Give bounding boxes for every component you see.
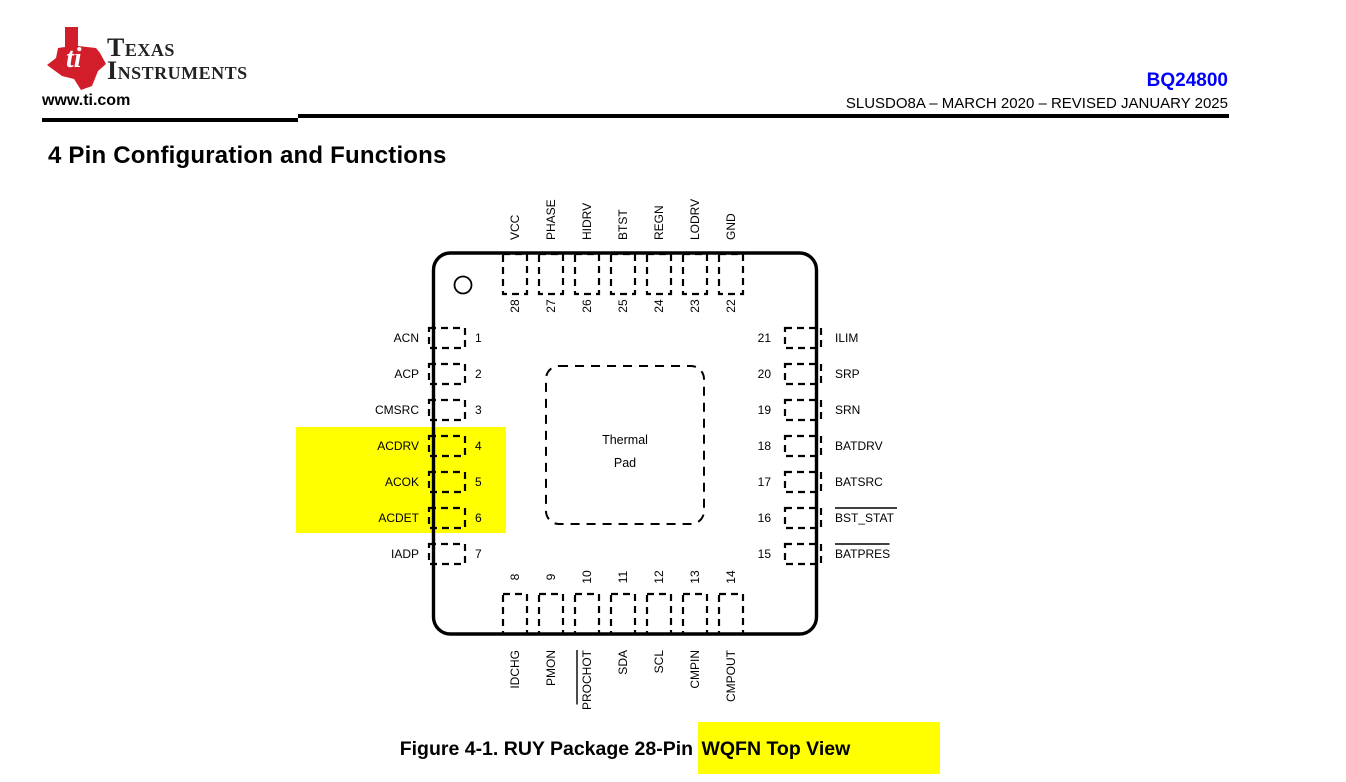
pin-pad-11	[611, 594, 635, 634]
pin-label-BATSRC: BATSRC	[835, 475, 883, 489]
pin-label-BTST: BTST	[616, 209, 630, 240]
pin-label-ACP: ACP	[394, 367, 419, 381]
thermal-pad-label-line2: Pad	[614, 456, 636, 470]
pin-label-ACN: ACN	[394, 331, 419, 345]
pin-number-24: 24	[652, 299, 666, 313]
pin-number-1: 1	[475, 331, 482, 345]
doc-revision-text: SLUSDO8A – MARCH 2020 – REVISED JANUARY …	[846, 95, 1228, 112]
pin-pad-26	[575, 254, 599, 294]
pin-pad-13	[683, 594, 707, 634]
pin-number-18: 18	[758, 439, 772, 453]
pin-number-9: 9	[544, 573, 558, 580]
ti-logo-icon: ti	[44, 26, 108, 92]
pin-label-BST_STAT: BST_STAT	[835, 511, 895, 525]
pin-number-23: 23	[688, 299, 702, 313]
pin-pad-10	[575, 594, 599, 634]
pin-number-13: 13	[688, 570, 702, 584]
pin-pad-24	[647, 254, 671, 294]
pin-label-LODRV: LODRV	[688, 199, 702, 240]
pin-number-4: 4	[475, 439, 482, 453]
pin-pad-23	[683, 254, 707, 294]
pin-label-ACDRV: ACDRV	[377, 439, 419, 453]
thermal-pad-label-line1: Thermal	[602, 433, 648, 447]
pin-label-CMPOUT: CMPOUT	[724, 649, 738, 702]
pin-label-SRN: SRN	[835, 403, 860, 417]
pin-label-IADP: IADP	[391, 547, 419, 561]
pin-pad-14	[719, 594, 743, 634]
pin-label-REGN: REGN	[652, 205, 666, 240]
pin-number-6: 6	[475, 511, 482, 525]
pin-pad-25	[611, 254, 635, 294]
pin-number-10: 10	[580, 570, 594, 584]
pin-label-PHASE: PHASE	[544, 199, 558, 240]
header-rule-right	[298, 114, 1229, 118]
pin-label-IDCHG: IDCHG	[508, 650, 522, 689]
pin-number-15: 15	[758, 547, 772, 561]
ti-monogram: ti	[66, 43, 82, 74]
pin-number-28: 28	[508, 299, 522, 313]
brand-line-instruments: Instruments	[107, 59, 248, 82]
pin-number-14: 14	[724, 570, 738, 584]
figure-caption-prefix: Figure 4-1. RUY Package 28-Pin	[400, 738, 699, 760]
brand-wordmark: Texas Instruments	[107, 36, 248, 82]
pin-pad-28	[503, 254, 527, 294]
pin-pad-12	[647, 594, 671, 634]
pin-label-SDA: SDA	[616, 650, 630, 675]
pin-number-8: 8	[508, 573, 522, 580]
pin-label-SRP: SRP	[835, 367, 860, 381]
part-number-link[interactable]: BQ24800	[1147, 70, 1228, 92]
pin-label-PROCHOT: PROCHOT	[580, 649, 594, 710]
pin-pad-8	[503, 594, 527, 634]
pin-number-3: 3	[475, 403, 482, 417]
pin-number-7: 7	[475, 547, 482, 561]
pin-label-VCC: VCC	[508, 214, 522, 240]
pin-number-26: 26	[580, 299, 594, 313]
header-rule-left	[42, 118, 298, 122]
pin-label-PMON: PMON	[544, 650, 558, 686]
pin-number-16: 16	[758, 511, 772, 525]
pin-number-5: 5	[475, 475, 482, 489]
pin-label-ACOK: ACOK	[385, 475, 419, 489]
website-link[interactable]: www.ti.com	[42, 92, 130, 110]
pin-number-19: 19	[758, 403, 772, 417]
pin-label-ILIM: ILIM	[835, 331, 858, 345]
pin1-indicator-icon	[455, 277, 472, 294]
pin-label-CMPIN: CMPIN	[688, 650, 702, 689]
figure-caption-highlight: WQFN Top View	[698, 722, 940, 774]
pin-label-CMSRC: CMSRC	[375, 403, 419, 417]
pin-number-20: 20	[758, 367, 772, 381]
figure-caption: Figure 4-1. RUY Package 28-Pin WQFN Top …	[300, 722, 1040, 774]
pin-pad-22	[719, 254, 743, 294]
section-title: 4 Pin Configuration and Functions	[48, 142, 447, 170]
pin-label-SCL: SCL	[652, 650, 666, 674]
pin-number-21: 21	[758, 331, 772, 345]
pin-number-27: 27	[544, 299, 558, 313]
pin-number-17: 17	[758, 475, 772, 489]
pin-configuration-diagram: ThermalPad28VCC27PHASE26HIDRV25BTST24REG…	[280, 180, 1020, 730]
pin-label-GND: GND	[724, 213, 738, 240]
pin-number-12: 12	[652, 570, 666, 584]
pin-pad-27	[539, 254, 563, 294]
pin-pad-9	[539, 594, 563, 634]
pin-number-22: 22	[724, 299, 738, 313]
pin-number-11: 11	[616, 570, 630, 583]
pin-number-2: 2	[475, 367, 482, 381]
pin-label-BATDRV: BATDRV	[835, 439, 883, 453]
pin-number-25: 25	[616, 299, 630, 313]
pin-label-ACDET: ACDET	[378, 511, 419, 525]
pin-label-BATPRES: BATPRES	[835, 547, 890, 561]
pin-label-HIDRV: HIDRV	[580, 203, 594, 240]
